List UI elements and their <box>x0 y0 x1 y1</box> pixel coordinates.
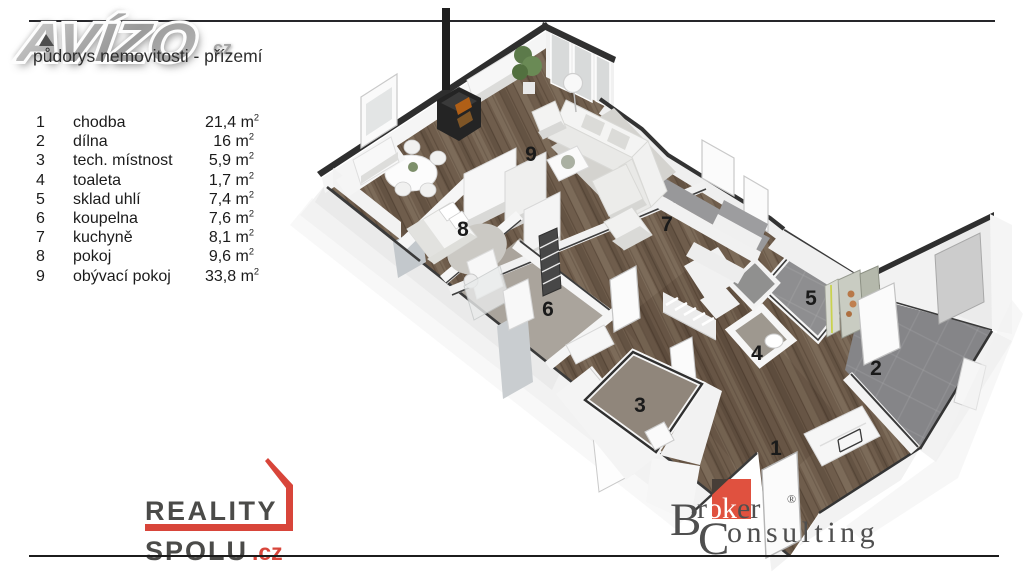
svg-text:5: 5 <box>805 287 817 310</box>
svg-text:2: 2 <box>870 357 882 380</box>
svg-text:7: 7 <box>661 213 673 236</box>
svg-text:3: 3 <box>634 394 646 417</box>
svg-text:6: 6 <box>542 298 554 321</box>
svg-text:9: 9 <box>525 143 537 166</box>
svg-text:1: 1 <box>770 437 782 460</box>
svg-text:4: 4 <box>751 342 763 365</box>
svg-text:8: 8 <box>457 218 469 241</box>
